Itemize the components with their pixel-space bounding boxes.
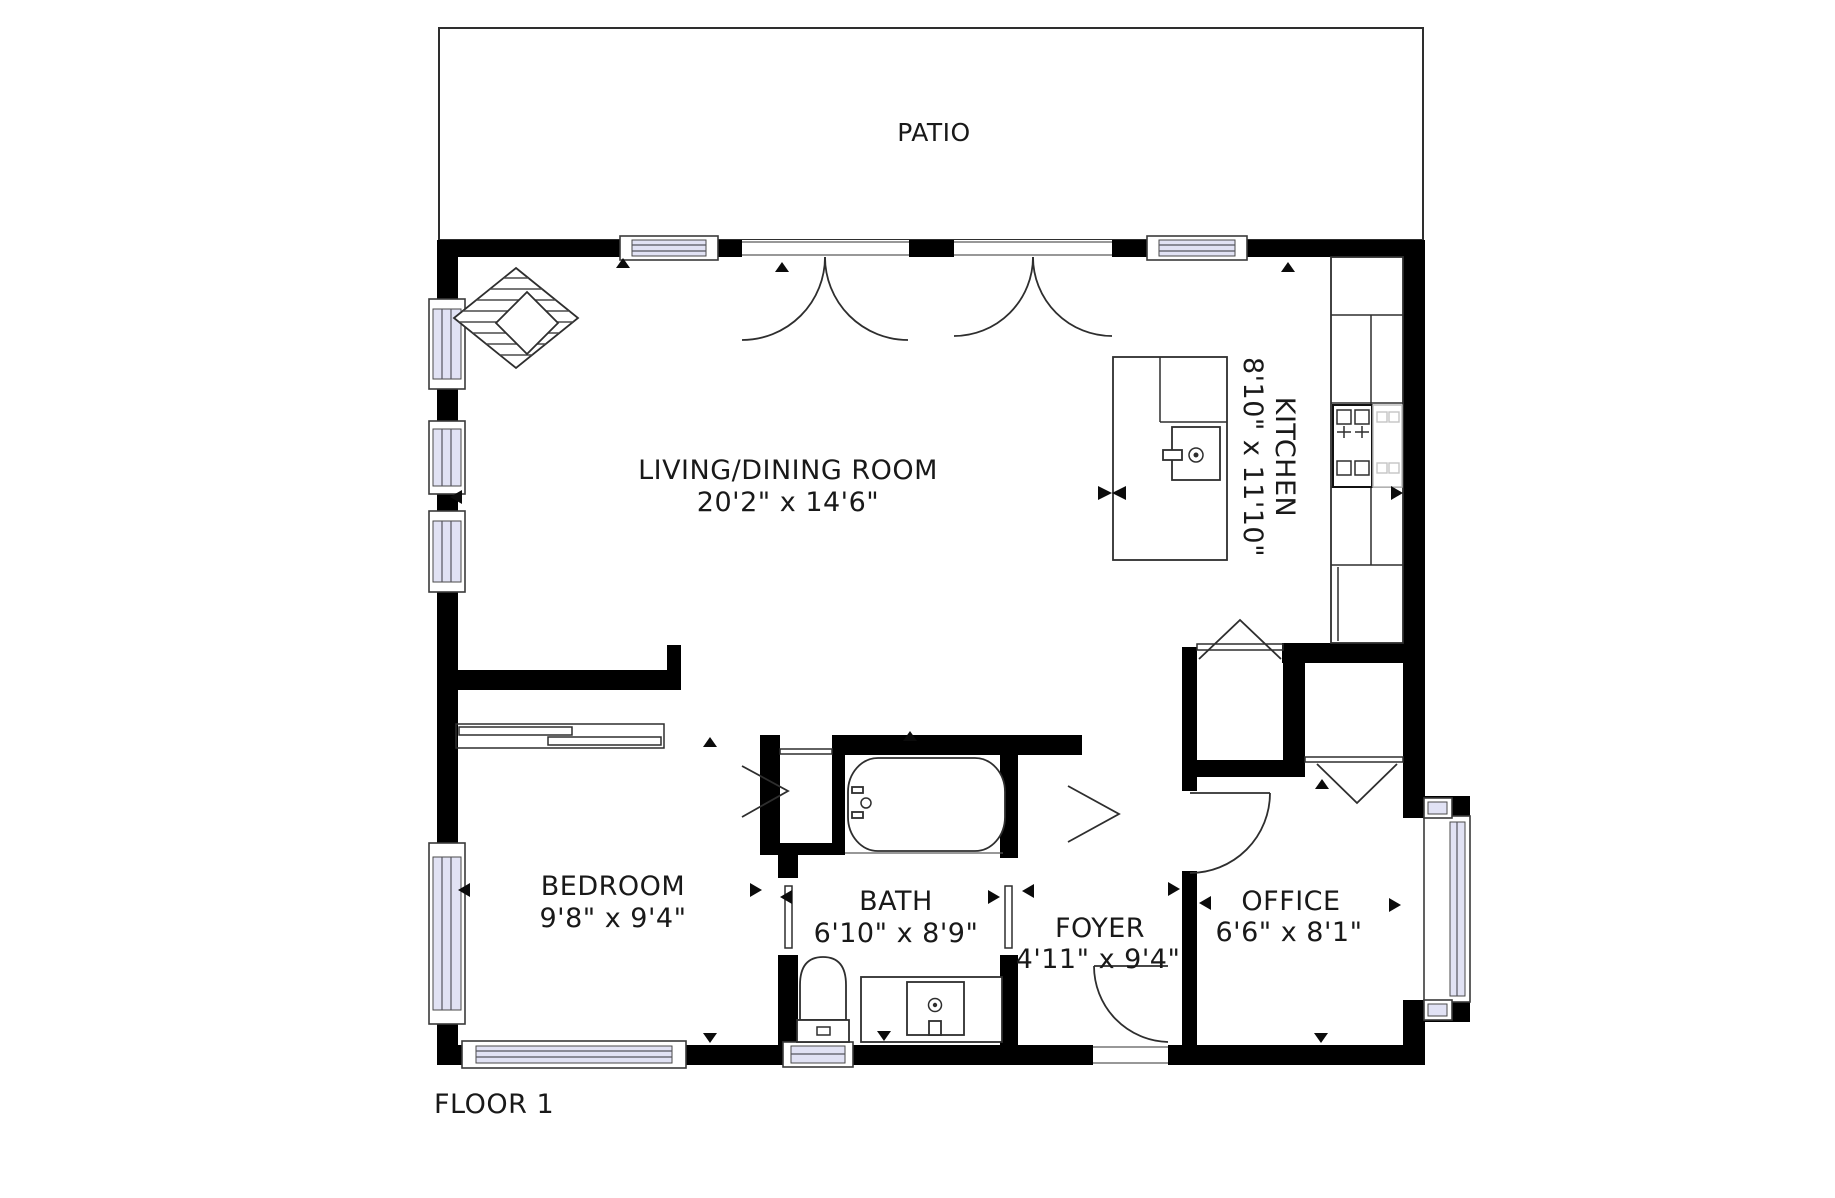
bathtub-icon bbox=[845, 758, 1005, 853]
bay-window bbox=[1424, 798, 1470, 1020]
floor-plan-page: PATIO LIVING/DINING ROOM 20'2" x 14'6" K… bbox=[0, 0, 1835, 1198]
foyer-label: FOYER bbox=[1055, 913, 1145, 944]
window-icon bbox=[429, 843, 465, 1024]
window-icon bbox=[462, 1041, 686, 1068]
sliding-closet-doors-icon bbox=[456, 724, 664, 748]
kitchen-dimensions: 8'10" x 11'10" bbox=[1237, 357, 1268, 557]
stove-icon bbox=[1333, 405, 1402, 487]
kitchen-label: KITCHEN bbox=[1269, 397, 1300, 518]
office-label: OFFICE bbox=[1241, 886, 1340, 917]
french-door-icon bbox=[954, 257, 1112, 336]
floor-label: FLOOR 1 bbox=[434, 1089, 554, 1120]
sink-icon bbox=[1163, 427, 1220, 480]
window-icon bbox=[783, 1042, 853, 1067]
patio-label: PATIO bbox=[897, 118, 970, 147]
closet-door-icon bbox=[1305, 757, 1403, 762]
bath-label: BATH bbox=[859, 886, 933, 917]
pantry-opening-chevron-icon bbox=[1199, 620, 1281, 659]
labels: PATIO LIVING/DINING ROOM 20'2" x 14'6" K… bbox=[434, 118, 1363, 1120]
window-icon bbox=[429, 511, 465, 592]
french-door-icon bbox=[742, 257, 908, 340]
foyer-dimensions: 4'11" x 9'4" bbox=[1016, 944, 1181, 975]
office-dimensions: 6'6" x 8'1" bbox=[1215, 917, 1362, 948]
window-icon bbox=[1147, 236, 1247, 260]
window-icon bbox=[620, 236, 718, 260]
closet-opening-chevron-icon bbox=[1317, 764, 1397, 803]
window-icon bbox=[429, 421, 465, 494]
living-dining-label: LIVING/DINING ROOM bbox=[638, 455, 938, 486]
bedroom-label: BEDROOM bbox=[541, 871, 685, 902]
kitchen-island bbox=[1113, 357, 1227, 560]
floor-plan-drawing: PATIO LIVING/DINING ROOM 20'2" x 14'6" K… bbox=[0, 0, 1835, 1198]
office-door-icon bbox=[1190, 793, 1270, 873]
foyer-opening-chevron-icon bbox=[1068, 786, 1119, 842]
living-dining-dimensions: 20'2" x 14'6" bbox=[697, 487, 879, 518]
bath-dimensions: 6'10" x 8'9" bbox=[814, 918, 979, 949]
entry-door-icon bbox=[1094, 966, 1168, 1042]
toilet-icon bbox=[797, 957, 849, 1042]
bedroom-dimensions: 9'8" x 9'4" bbox=[539, 903, 686, 934]
